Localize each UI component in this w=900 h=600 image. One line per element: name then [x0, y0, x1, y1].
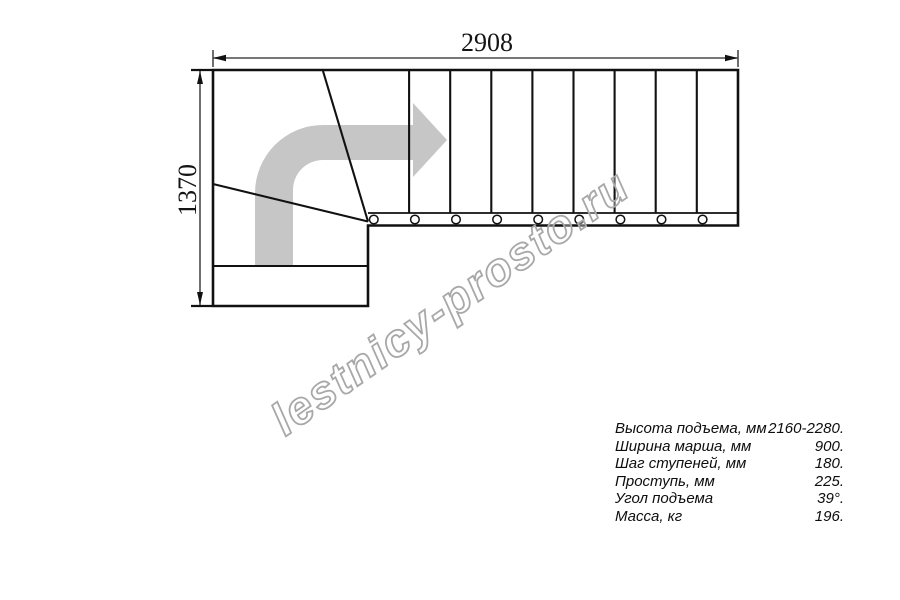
spec-row-mass: Масса, кг 196.	[615, 508, 844, 526]
spec-label: Высота подъема, мм	[615, 420, 767, 438]
spec-table: Высота подъема, мм 2160-2280. Ширина мар…	[615, 420, 844, 525]
height-dimension-label: 1370	[173, 164, 202, 216]
baluster-circle	[657, 215, 666, 224]
baluster-circle	[534, 215, 543, 224]
spec-value: 225.	[815, 473, 844, 491]
spec-value: 2160-2280.	[768, 420, 844, 438]
dim-arrow-down-icon	[197, 292, 203, 305]
baluster-circle	[452, 215, 461, 224]
tread-lines	[409, 71, 697, 213]
spec-row-flight-width: Ширина марша, мм 900.	[615, 438, 844, 456]
dim-arrow-up-icon	[197, 71, 203, 84]
width-dimension-label: 2908	[461, 28, 513, 57]
spec-label: Ширина марша, мм	[615, 438, 751, 456]
baluster-circle	[575, 215, 584, 224]
baluster-circle	[411, 215, 420, 224]
baluster-circle	[616, 215, 625, 224]
spec-row-tread: Проступь, мм 225.	[615, 473, 844, 491]
baluster-circles	[370, 215, 707, 224]
dimension-width: 2908	[213, 28, 738, 67]
spec-label: Угол подъема	[615, 490, 713, 508]
baluster-circle	[698, 215, 707, 224]
baluster-circle	[370, 215, 379, 224]
spec-row-angle: Угол подъема 39°.	[615, 490, 844, 508]
direction-arrow	[255, 103, 447, 267]
spec-value: 196.	[815, 508, 844, 526]
spec-label: Проступь, мм	[615, 473, 715, 491]
spec-row-step-rise: Шаг ступеней, мм 180.	[615, 455, 844, 473]
spec-row-height: Высота подъема, мм 2160-2280.	[615, 420, 844, 438]
spec-label: Шаг ступеней, мм	[615, 455, 746, 473]
spec-label: Масса, кг	[615, 508, 682, 526]
spec-value: 180.	[815, 455, 844, 473]
dimension-height: 1370	[173, 71, 203, 305]
dim-arrow-right-icon	[725, 55, 738, 61]
spec-value: 39°.	[817, 490, 844, 508]
staircase-drawing-page: { "drawing": { "title_watermark": "lestn…	[0, 0, 900, 600]
baluster-circle	[493, 215, 502, 224]
spec-value: 900.	[815, 438, 844, 456]
dim-arrow-left-icon	[213, 55, 226, 61]
